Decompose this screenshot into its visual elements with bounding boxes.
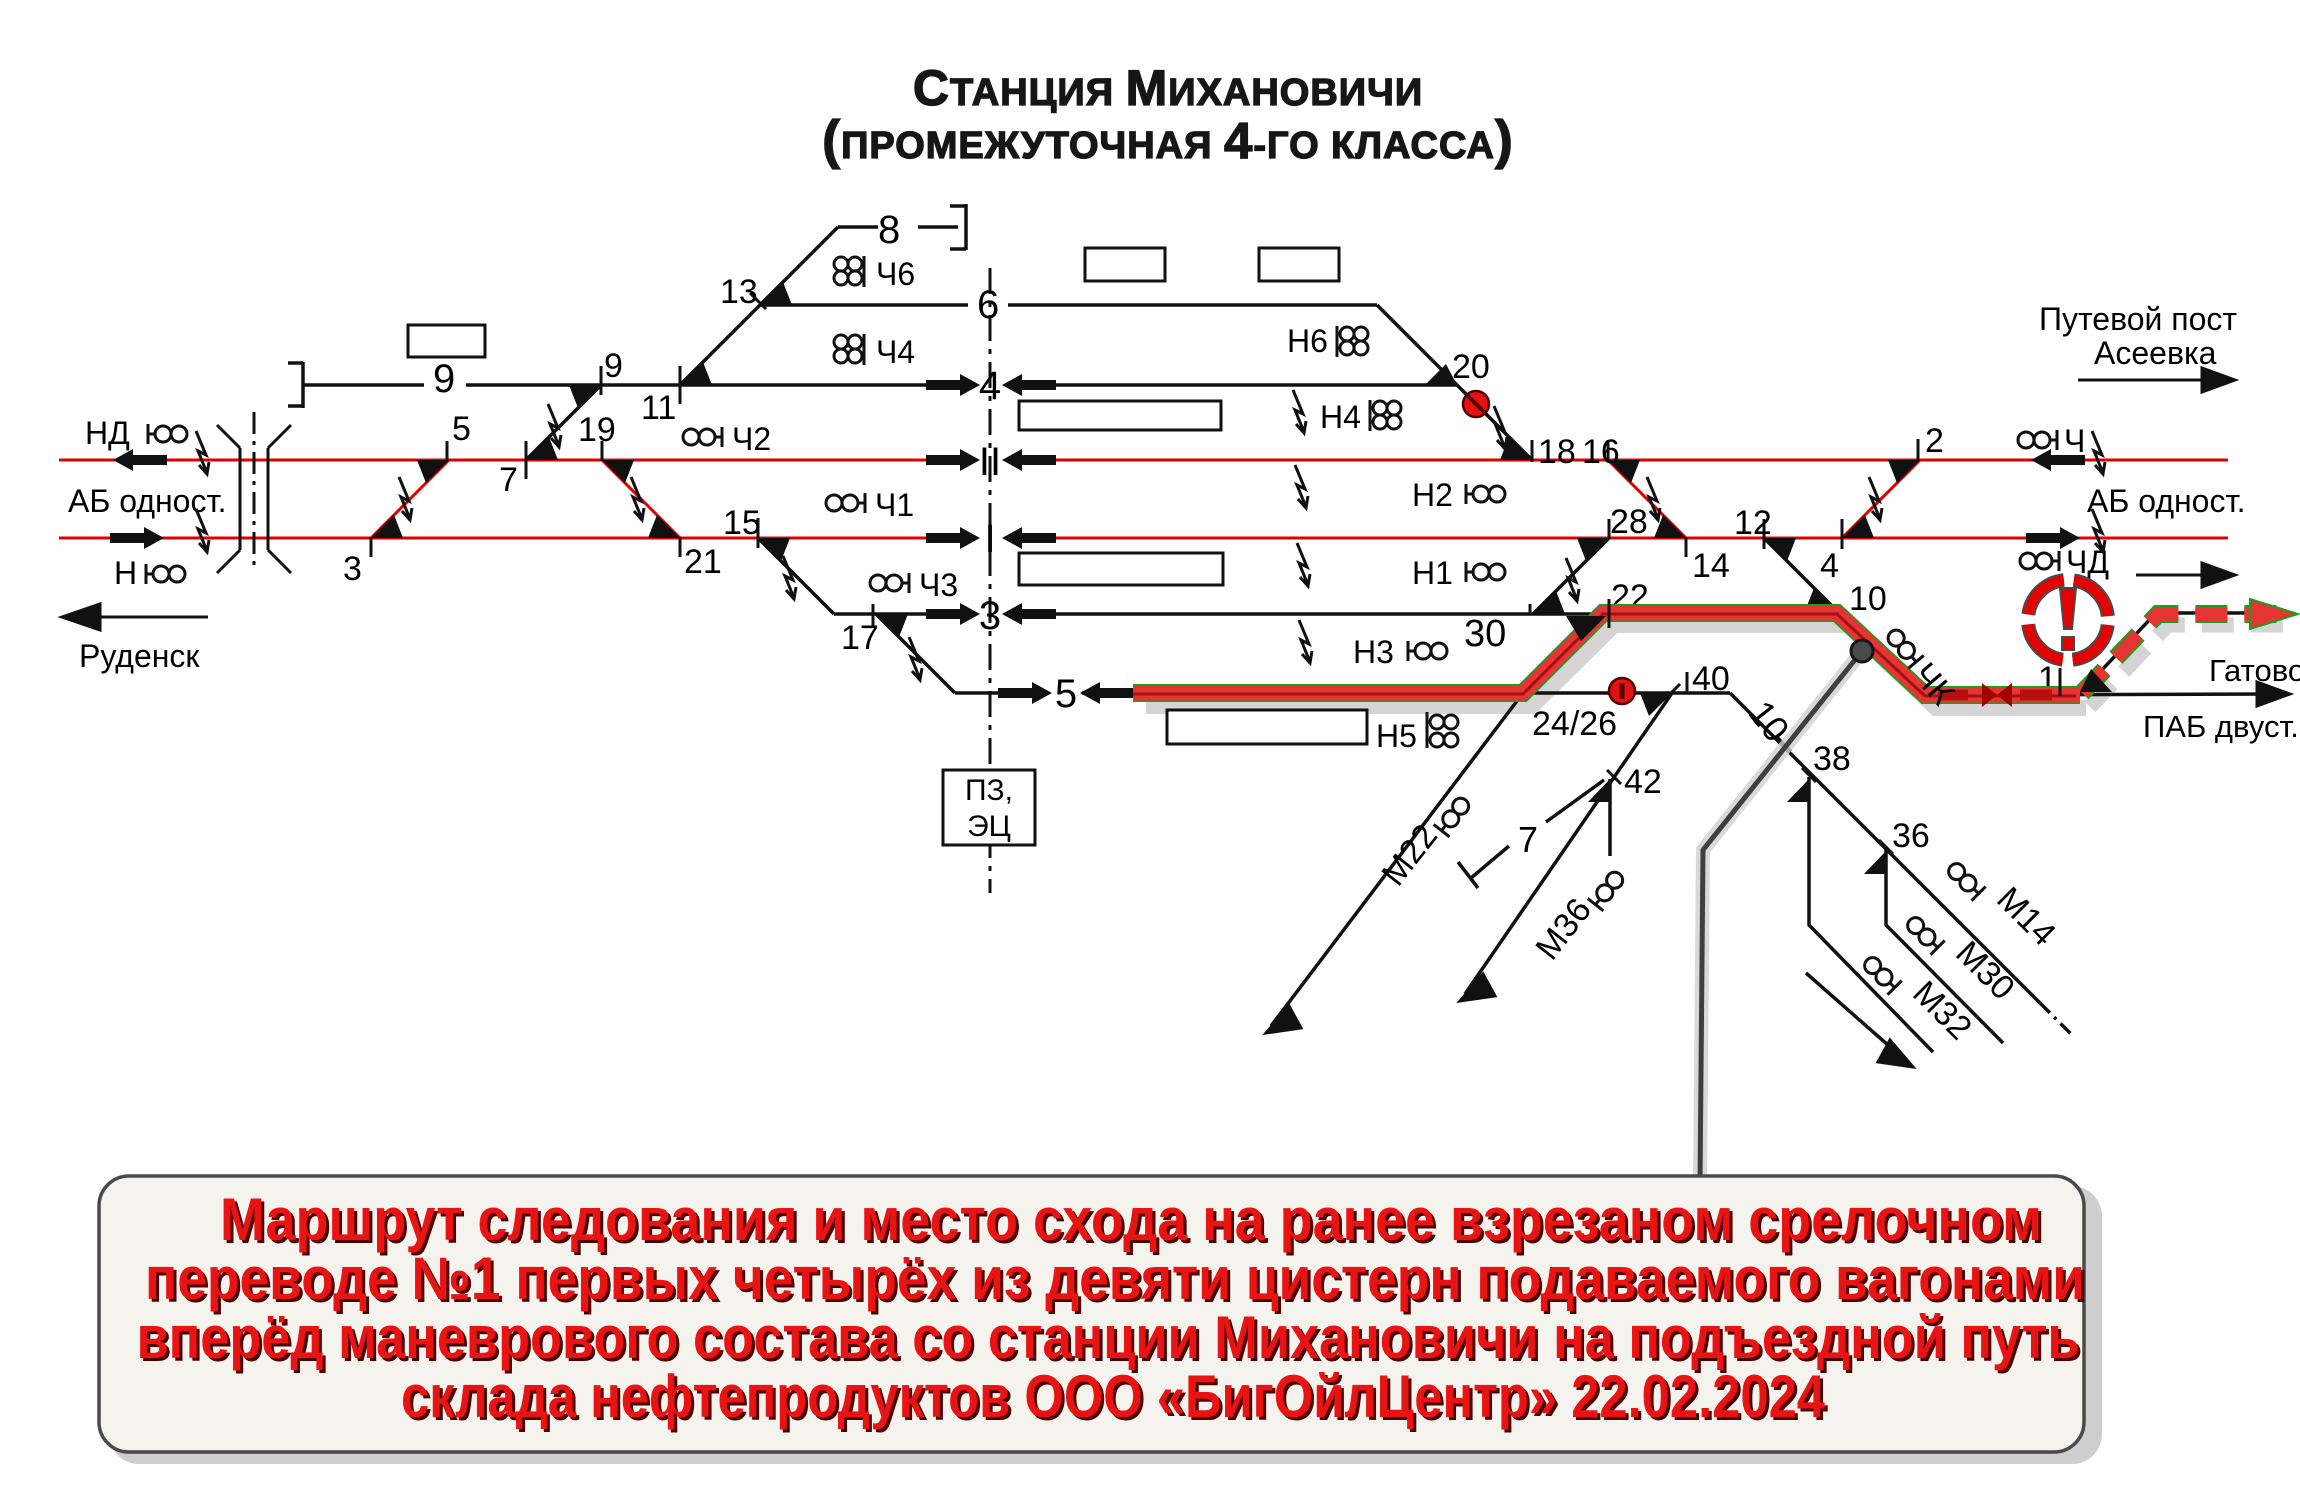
- svg-text:5: 5: [1055, 672, 1077, 716]
- svg-text:Н: Н: [114, 555, 137, 591]
- svg-text:15: 15: [723, 504, 761, 542]
- svg-text:16: 16: [1582, 433, 1620, 471]
- svg-text:АБ одност.: АБ одност.: [68, 483, 226, 519]
- svg-text:Ч4: Ч4: [876, 334, 915, 370]
- svg-text:3: 3: [979, 594, 1001, 638]
- svg-text:Н2: Н2: [1412, 477, 1453, 513]
- svg-text:4: 4: [1820, 547, 1839, 585]
- svg-text:28: 28: [1610, 503, 1648, 541]
- svg-text:Маршрут следования и место схо: Маршрут следования и место схода на ране…: [220, 1186, 2042, 1253]
- svg-text:вперёд маневрового состава со: вперёд маневрового состава со станции Ми…: [137, 1304, 2080, 1371]
- svg-text:8: 8: [878, 208, 900, 252]
- svg-text:II: II: [979, 440, 1001, 484]
- svg-text:20: 20: [1452, 348, 1490, 386]
- svg-text:АБ одност.: АБ одност.: [2087, 483, 2245, 519]
- svg-text:9: 9: [433, 357, 455, 401]
- svg-text:40: 40: [1692, 660, 1730, 698]
- svg-text:36: 36: [1892, 817, 1930, 855]
- svg-text:ЭЦ: ЭЦ: [967, 810, 1011, 843]
- svg-text:Н3: Н3: [1353, 634, 1394, 670]
- svg-text:НД: НД: [85, 415, 130, 451]
- svg-text:I: I: [984, 517, 995, 561]
- svg-text:Асеевка: Асеевка: [2094, 335, 2217, 371]
- svg-text:21: 21: [684, 543, 722, 581]
- svg-text:Ч: Ч: [2064, 423, 2085, 459]
- svg-text:18: 18: [1538, 433, 1576, 471]
- svg-text:13: 13: [720, 273, 758, 311]
- svg-text:переводе №1 первых четырёх из: переводе №1 первых четырёх из девяти цис…: [145, 1245, 2085, 1312]
- svg-text:Н5: Н5: [1376, 718, 1417, 754]
- svg-text:3: 3: [343, 550, 362, 588]
- svg-text:9: 9: [604, 347, 623, 385]
- svg-text:Ч3: Ч3: [919, 567, 958, 603]
- svg-text:5: 5: [452, 410, 471, 448]
- svg-text:ПЗ,: ПЗ,: [965, 774, 1013, 807]
- svg-text:19: 19: [578, 411, 616, 449]
- svg-text:38: 38: [1813, 740, 1851, 778]
- svg-text:склада нефтепродуктов ООО «Би: склада нефтепродуктов ООО «БигОйлЦентр» …: [401, 1363, 1826, 1430]
- svg-text:24/26: 24/26: [1532, 705, 1617, 743]
- svg-text:6: 6: [977, 283, 999, 327]
- svg-text:Руденск: Руденск: [79, 638, 200, 674]
- svg-text:10: 10: [1849, 580, 1887, 618]
- svg-text:4: 4: [979, 364, 1001, 408]
- svg-text:Гатово: Гатово: [2209, 653, 2300, 688]
- svg-text:2: 2: [1925, 422, 1944, 460]
- svg-text:42: 42: [1624, 763, 1662, 801]
- svg-text:14: 14: [1692, 547, 1730, 585]
- svg-text:Ч1: Ч1: [875, 487, 914, 523]
- svg-text:Ч2: Ч2: [732, 421, 771, 457]
- svg-text:Н4: Н4: [1320, 399, 1361, 435]
- svg-text:Путевой пост: Путевой пост: [2039, 301, 2237, 337]
- svg-text:17: 17: [841, 619, 879, 657]
- svg-text:7: 7: [1518, 819, 1538, 860]
- svg-text:Н1: Н1: [1412, 555, 1453, 591]
- svg-text:11: 11: [641, 389, 676, 427]
- svg-text:7: 7: [499, 461, 518, 499]
- svg-text:Ч6: Ч6: [876, 256, 915, 292]
- svg-text:ПАБ двуст.: ПАБ двуст.: [2143, 709, 2299, 744]
- svg-text:Н6: Н6: [1287, 323, 1328, 359]
- svg-text:30: 30: [1464, 613, 1506, 655]
- svg-text:12: 12: [1734, 504, 1772, 542]
